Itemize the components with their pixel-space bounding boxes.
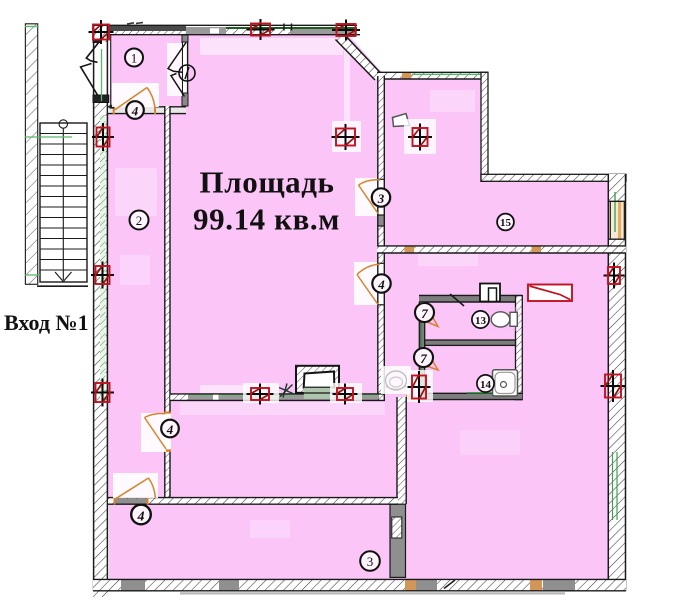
svg-text:1: 1: [131, 51, 138, 66]
svg-text:4: 4: [137, 510, 145, 525]
svg-text:13: 13: [475, 315, 487, 327]
svg-text:Площадь: Площадь: [200, 165, 335, 200]
svg-text:Вход №1: Вход №1: [4, 310, 89, 335]
svg-text:99.14 кв.м: 99.14 кв.м: [193, 202, 340, 237]
svg-text:4: 4: [131, 104, 139, 119]
svg-text:14: 14: [480, 379, 492, 391]
svg-text:4: 4: [166, 422, 174, 437]
svg-text:4: 4: [377, 277, 385, 292]
svg-text:15: 15: [500, 217, 512, 229]
svg-text:3: 3: [377, 191, 385, 206]
svg-text:7: 7: [420, 351, 427, 366]
svg-text:7: 7: [421, 306, 428, 321]
svg-text:2: 2: [136, 213, 143, 228]
svg-text:3: 3: [367, 554, 374, 569]
